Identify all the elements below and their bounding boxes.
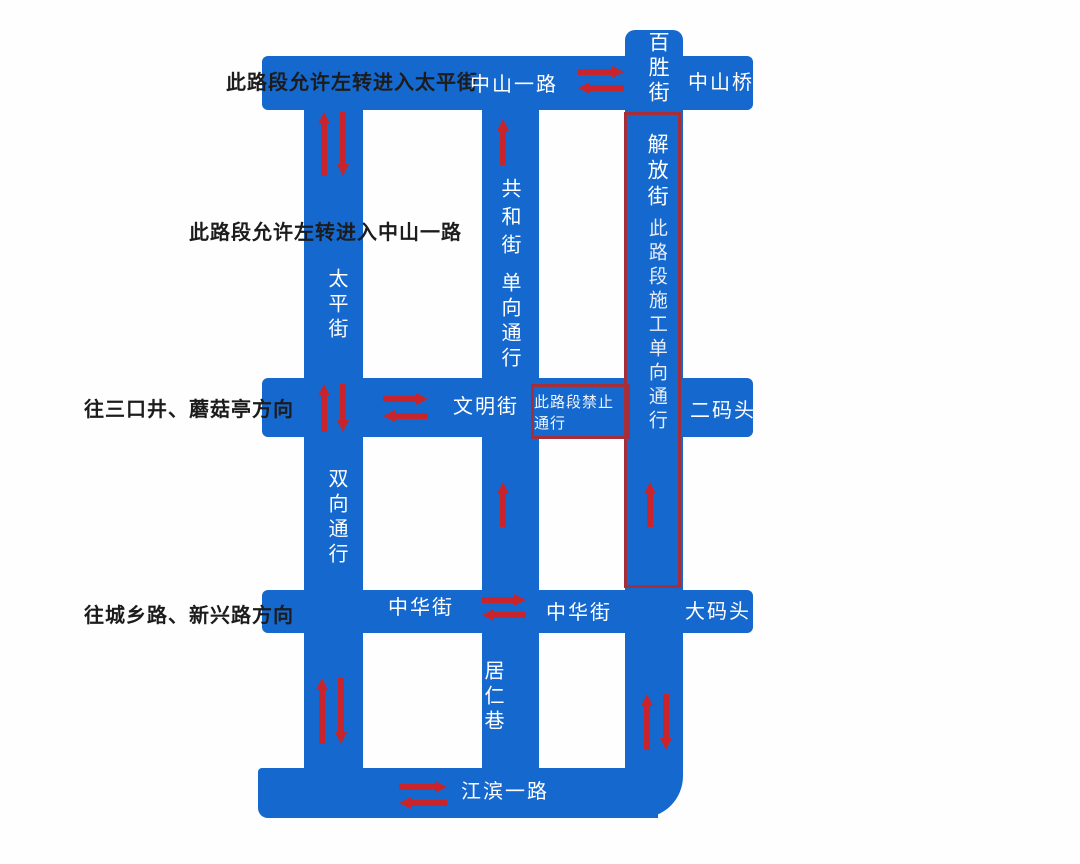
traffic-arrow-taiping-bot-southbound — [335, 678, 347, 744]
traffic-arrow-zhonghua-eastbound — [482, 594, 526, 606]
street-label-baisheng-jie: 百胜街 — [646, 31, 669, 106]
city-block — [683, 110, 880, 378]
annotation-left-turn-taiping: 此路段允许左转进入太平街 — [226, 71, 478, 93]
traffic-arrow-jiangbin-eastbound — [399, 781, 447, 793]
traffic-arrow-zhongshan-yilu-eastbound — [578, 66, 624, 78]
traffic-arrow-zhongshan-yilu-westbound — [578, 82, 624, 94]
city-block — [363, 437, 482, 590]
no-passage-box: 此路段禁止通行 — [531, 384, 630, 439]
traffic-arrow-zhonghua-westbound — [482, 609, 526, 621]
traffic-arrow-gonghe-mid-northbound — [497, 482, 509, 527]
city-block — [683, 0, 880, 56]
notice-label-jiefang-construction: 此路段施工单向通行 — [646, 218, 667, 434]
notice-label-gonghe-one-way: 单向通行 — [499, 272, 521, 372]
street-label-taiping-jie: 太平街 — [326, 268, 348, 343]
annotation-left-turn-zhongshan: 此路段允许左转进入中山一路 — [189, 221, 462, 243]
notice-label-two-way: 双向通行 — [326, 468, 348, 568]
street-label-zhonghua-jie-east: 中华街 — [546, 601, 612, 623]
city-block — [539, 110, 625, 378]
road-taiping-jie — [304, 80, 363, 800]
street-label-jiefang-jie: 解放街 — [645, 133, 668, 211]
traffic-restriction-map: 此路段禁止通行 此路段允许左转进入太平街 此路段允许左转进入中山一路 往三口井、… — [0, 0, 1080, 864]
street-label-gonghe-jie: 共和街 — [499, 178, 521, 262]
city-block — [683, 437, 880, 590]
city-block — [363, 110, 482, 378]
city-block — [539, 437, 625, 590]
traffic-arrow-jiangbin-westbound — [399, 797, 447, 809]
street-label-juren-xiang: 居仁巷 — [482, 660, 504, 735]
city-block — [130, 110, 304, 378]
street-label-wenming-jie: 文明街 — [453, 395, 519, 417]
traffic-arrow-jiefang-bot-northbound — [641, 694, 653, 750]
traffic-arrow-taiping-bot-northbound — [316, 678, 328, 744]
street-label-zhonghua-jie-west: 中华街 — [388, 596, 454, 618]
city-block — [130, 633, 304, 768]
traffic-arrow-jiefang-bot-southbound — [660, 694, 672, 750]
street-label-damatou: 大码头 — [685, 600, 751, 622]
traffic-arrow-taiping-mid-northbound — [318, 384, 330, 432]
traffic-arrow-taiping-top-southbound — [337, 112, 349, 176]
city-block — [363, 633, 482, 768]
street-label-ermatou: 二码头 — [690, 399, 756, 421]
annotation-toward-chengxiang: 往城乡路、新兴路方向 — [84, 604, 294, 626]
traffic-arrow-wenming-westbound — [383, 410, 428, 422]
street-label-jiangbin-yilu: 江滨一路 — [461, 780, 549, 802]
traffic-arrow-taiping-mid-southbound — [337, 384, 349, 432]
street-label-zhongshan-qiao: 中山桥 — [688, 71, 754, 93]
street-label-zhongshan-yilu: 中山一路 — [470, 73, 558, 95]
no-passage-label: 此路段禁止通行 — [534, 391, 627, 433]
traffic-arrow-jiefang-mid-northbound — [644, 482, 656, 527]
traffic-arrow-wenming-eastbound — [383, 393, 428, 405]
city-block — [683, 633, 880, 864]
city-block — [539, 633, 625, 768]
traffic-arrow-gonghe-top-northbound — [497, 119, 509, 165]
city-block — [130, 437, 304, 590]
city-block — [420, 0, 625, 56]
traffic-arrow-taiping-top-northbound — [318, 112, 330, 176]
annotation-toward-sankoujing: 往三口井、蘑菇亭方向 — [84, 398, 294, 420]
